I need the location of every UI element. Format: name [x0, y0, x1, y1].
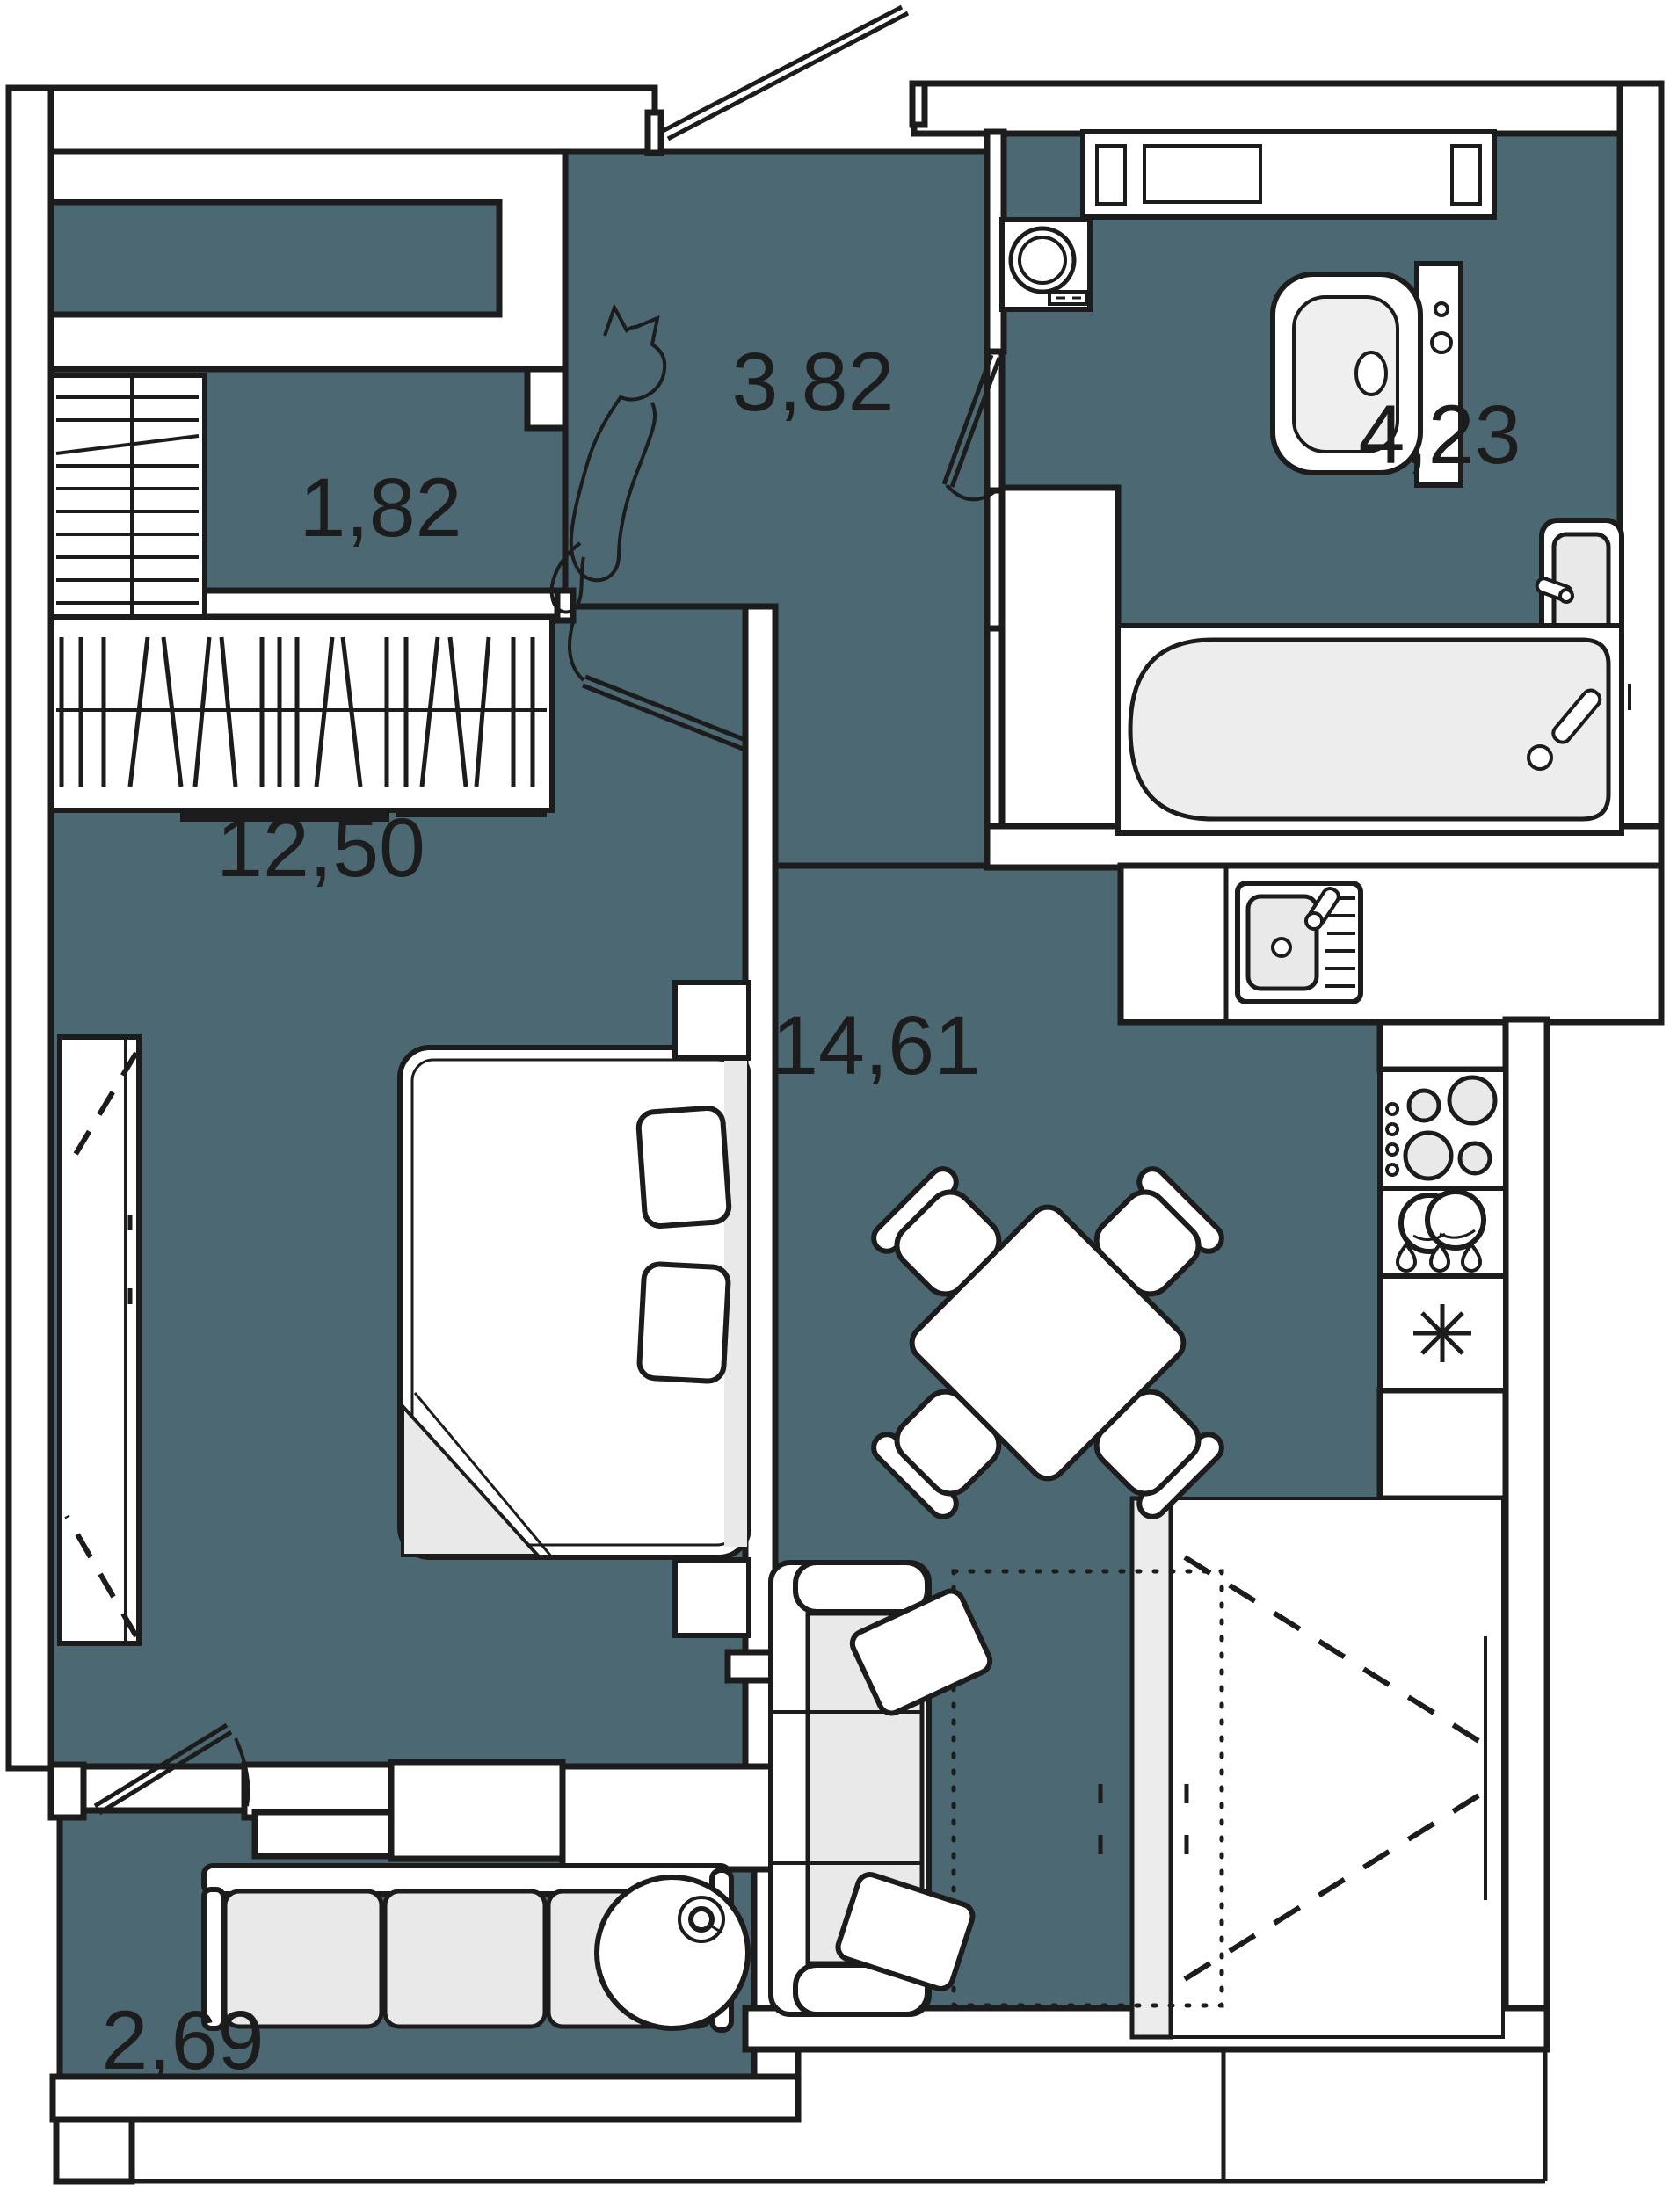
entrance-door-jamb-right — [912, 83, 925, 125]
tall-cabinet — [1100, 1498, 1503, 2037]
floor-plan-page: 1,82 3,82 4,23 12,50 14,61 2,69 — [0, 0, 1670, 2212]
fridge — [1380, 1276, 1506, 1390]
burner — [1460, 1143, 1490, 1173]
wall-left — [9, 88, 51, 1768]
label-hallway: 3,82 — [732, 336, 895, 429]
shelf-slot-right — [1452, 146, 1480, 204]
burner — [1405, 1133, 1451, 1179]
dishwasher — [1380, 1188, 1506, 1276]
entrance-door-jamb-left — [648, 112, 661, 153]
label-bathroom: 4,23 — [1359, 388, 1521, 482]
bedroom-door-hinge — [557, 591, 573, 620]
nightstand-top — [675, 983, 749, 1058]
burner — [1409, 1091, 1439, 1121]
wall-balcony-north-a — [51, 1765, 83, 1817]
tall-cabinet-front — [1132, 1498, 1171, 2037]
entrance-door-leaf — [661, 7, 908, 139]
label-kitchen-living: 14,61 — [772, 999, 981, 1092]
bathtub-drain — [1528, 746, 1551, 769]
balcony-sofa-cushion — [385, 1891, 545, 2027]
wall-stub-hall — [527, 369, 565, 428]
washing-machine — [1002, 220, 1090, 309]
label-bedroom: 12,50 — [216, 801, 425, 895]
wall-balcony-chunk — [563, 1766, 798, 1869]
kitchen-counter — [1121, 866, 1661, 1022]
kitchen-faucet-base — [1306, 913, 1322, 929]
entrance-door — [648, 7, 925, 153]
sink-faucet-base — [1560, 590, 1572, 602]
storage-furniture — [51, 375, 205, 628]
wall-balcony-pier — [391, 1762, 563, 1859]
kitchen-counter-lower — [1380, 1390, 1506, 1498]
sofa-armrest-top — [795, 1563, 927, 1612]
wall-bottom-left-block — [56, 2120, 132, 2181]
toilet-button-large — [1432, 333, 1451, 352]
burner — [1449, 1077, 1495, 1123]
shoe-rack — [51, 375, 205, 628]
round-table — [597, 1877, 748, 2028]
cup-inner — [691, 1909, 712, 1930]
wall-top-left — [9, 88, 655, 151]
balcony-furniture — [204, 1866, 748, 2030]
wall-right-lower — [1506, 1019, 1547, 2049]
shelf-box — [1144, 146, 1260, 202]
wall-top-right — [914, 83, 1661, 134]
nightstand-bottom — [675, 1560, 749, 1635]
wall-bath-shaft — [1002, 488, 1118, 835]
label-storage: 1,82 — [300, 461, 462, 555]
wall-balcony-north-c — [255, 1812, 391, 1856]
floor-plan: 1,82 3,82 4,23 12,50 14,61 2,69 — [0, 0, 1670, 2212]
toilet-button-small — [1435, 303, 1448, 315]
stove — [1380, 1070, 1506, 1188]
bathtub — [1118, 626, 1622, 833]
bath-shelf — [1083, 132, 1494, 217]
dining-table-set — [868, 1164, 1227, 1522]
kitchen-sink-drain — [1273, 939, 1290, 956]
pillow — [639, 1264, 730, 1382]
pillow — [638, 1107, 730, 1227]
bathtub-basin — [1130, 640, 1608, 819]
label-balcony: 2,69 — [102, 1994, 265, 2087]
shelf-slot-left — [1097, 146, 1125, 204]
kitchen-sink — [1238, 883, 1361, 1002]
entry-niche — [26, 202, 499, 315]
kitchen-counter-return — [1380, 1022, 1506, 1070]
bed — [400, 1048, 749, 1557]
